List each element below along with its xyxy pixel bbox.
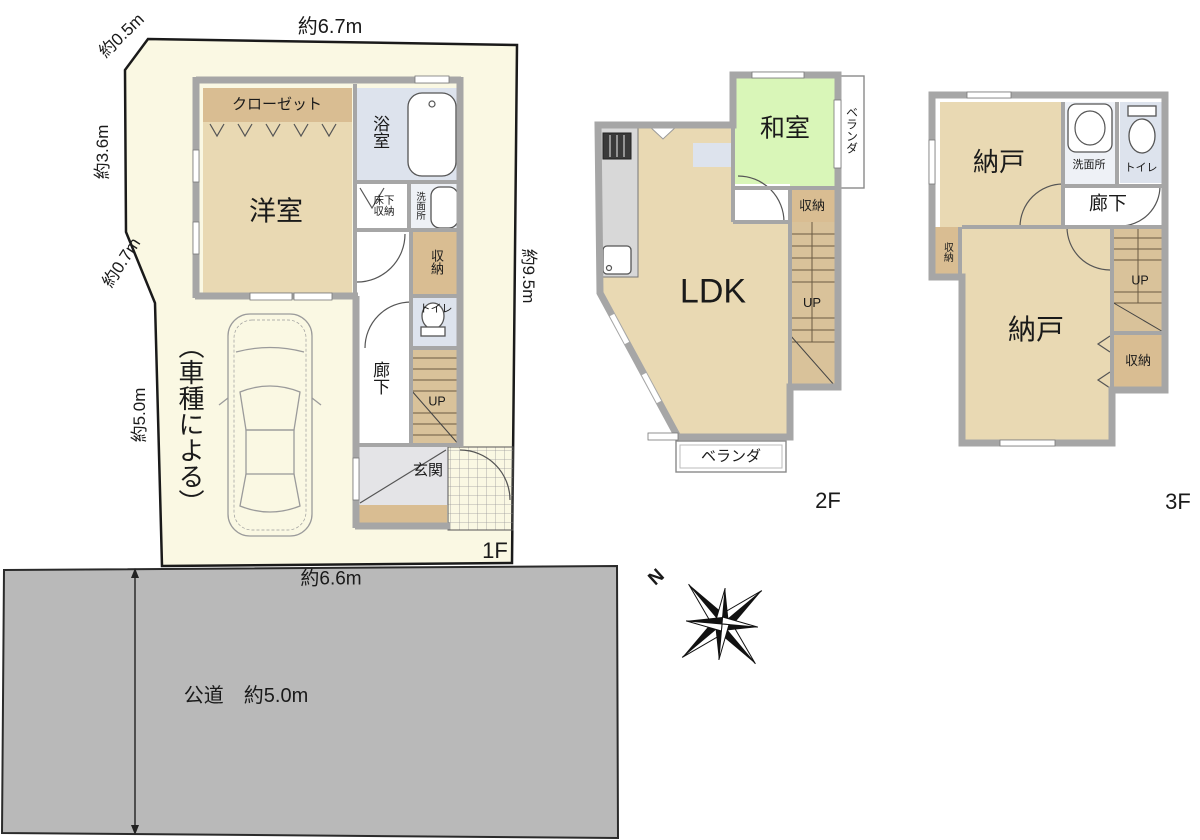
- sink-1f-icon: [431, 187, 458, 228]
- counter-2f: [693, 143, 733, 167]
- label-storeroom-a: 納戸: [973, 148, 1025, 176]
- label-toilet-3f: トイレ: [1125, 163, 1158, 175]
- road-label: 公道 約5.0m: [184, 686, 308, 708]
- floor1-label: 1F: [482, 539, 508, 563]
- toilet-tank-3f-icon: [1128, 106, 1156, 116]
- window-storeroom-b-bottom: [1000, 440, 1055, 446]
- toilet-tank-1f-icon: [421, 327, 445, 336]
- label-entrance: 玄関: [413, 463, 443, 479]
- label-storage-left-3f: 収納: [941, 242, 952, 262]
- label-washroom-3f: 洗面所: [1073, 160, 1106, 172]
- compass-rose: [649, 551, 796, 698]
- label-ldk: LDK: [680, 274, 746, 311]
- label-stairs-3f: UP: [1131, 274, 1148, 288]
- label-corridor-3f: 廊下: [1089, 195, 1127, 216]
- label-storage-2f: 収納: [799, 199, 825, 213]
- label-underfloor-storage: 床下収納: [370, 196, 398, 219]
- floor-plan-page: 約0.5m 約6.7m 約3.6m 約0.7m 約5.0m 約9.5m 約6.6…: [0, 0, 1200, 840]
- window-storeroom-a-left: [929, 140, 935, 184]
- compass-points: [649, 551, 796, 698]
- window-ldk-bottom: [648, 433, 678, 440]
- label-bath: 浴室: [370, 115, 388, 149]
- label-veranda-bottom: ベランダ: [701, 449, 761, 465]
- label-stairs-1f: UP: [428, 395, 445, 409]
- window-western-bottom1: [250, 293, 292, 300]
- window-storeroom-a-top: [967, 92, 1011, 98]
- label-stairs-2f: UP: [803, 296, 821, 310]
- label-storage-1f: 収納: [429, 249, 443, 275]
- label-storage-right-3f: 収納: [1125, 354, 1151, 368]
- road-shape: [2, 566, 618, 838]
- label-washroom-1f: 洗面所: [414, 192, 424, 221]
- dim-bottom: 約6.6m: [300, 570, 361, 591]
- label-corridor-1f: 廊下: [370, 361, 388, 395]
- dim-right: 約9.5m: [519, 249, 537, 304]
- room-corridor-1f: [357, 232, 411, 445]
- dim-left-upper: 約3.6m: [94, 125, 112, 180]
- toilet-bowl-3f-icon: [1129, 119, 1155, 153]
- entrance-porch-tiles: [448, 447, 513, 530]
- label-toilet-1f: トイレ: [420, 304, 453, 316]
- window-corridor: [353, 458, 359, 500]
- floor3-label: 3F: [1165, 490, 1191, 514]
- window-japanese-right: [834, 100, 841, 168]
- dim-left-lower: 約5.0m: [131, 388, 149, 443]
- window-western-left2: [193, 222, 199, 254]
- label-veranda-side: ベランダ: [845, 106, 858, 154]
- label-western: 洋室: [249, 197, 303, 226]
- window-western-bottom2: [294, 293, 332, 300]
- floor2-label: 2F: [815, 489, 841, 513]
- dim-top: 約6.7m: [298, 17, 362, 39]
- window-bath: [415, 76, 449, 83]
- parking-note: （車種による）: [176, 333, 204, 515]
- window-western-left1: [193, 150, 199, 182]
- label-closet: クローゼット: [232, 97, 322, 113]
- road-area: [2, 566, 618, 838]
- window-japanese-top: [752, 72, 804, 78]
- bathtub-icon: [408, 93, 456, 176]
- label-japanese-room: 和室: [760, 116, 810, 143]
- label-storeroom-b: 納戸: [1008, 315, 1064, 345]
